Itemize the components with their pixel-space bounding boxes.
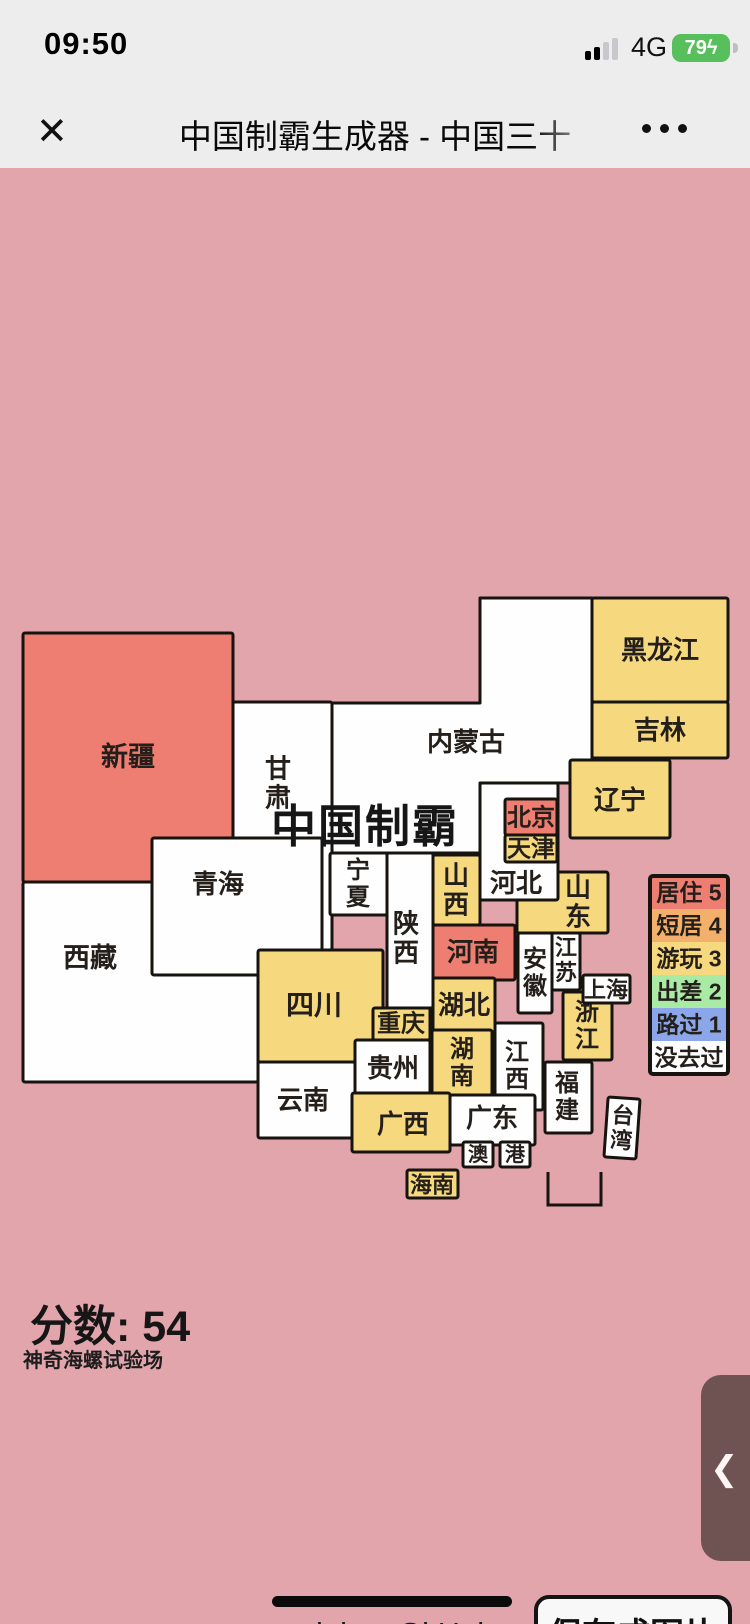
legend-label-lv3: 游玩 3 [656, 946, 721, 972]
province-label: 黑龙江 [621, 635, 699, 665]
phone-screen: 09:50 4G 79ϟ ✕ 中国制霸生成器 - 中国三十 新疆西藏甘肃青海内蒙… [0, 0, 750, 1624]
province-anhui[interactable]: 安徽 [518, 933, 552, 1013]
province-xianggang[interactable]: 港 [500, 1142, 530, 1167]
network-type-label: 4G [631, 32, 667, 63]
legend-label-lv4: 短居 4 [656, 913, 721, 939]
province-label: 广东 [466, 1103, 518, 1133]
legend-label-lv5: 居住 5 [656, 880, 721, 906]
province-label: 河南 [447, 937, 499, 967]
province-liaoning[interactable]: 辽宁 [570, 760, 670, 838]
province-guizhou[interactable]: 贵州 [355, 1040, 430, 1097]
map-subtitle: 神奇海螺试验场 [23, 1344, 163, 1373]
province-label: 贵州 [367, 1053, 419, 1083]
province-label: 山西 [443, 861, 469, 920]
save-image-button[interactable]: 保存成图片 [534, 1595, 732, 1624]
province-label: 内蒙古 [427, 727, 505, 757]
battery-icon: 79ϟ [672, 34, 730, 62]
province-shaanxi[interactable]: 陕西 [387, 853, 433, 1008]
province-heilongjiang[interactable]: 黑龙江 [592, 598, 728, 702]
province-label: 北京 [507, 804, 555, 832]
page-title: 中国制霸生成器 - 中国三十 [130, 110, 620, 158]
province-shanxi[interactable]: 山西 [433, 855, 480, 925]
province-label: 青海 [192, 869, 244, 899]
province-label: 广西 [377, 1109, 429, 1139]
status-time: 09:50 [44, 26, 128, 62]
province-taiwan[interactable]: 台湾 [604, 1097, 640, 1159]
province-label: 宁夏 [346, 856, 371, 911]
province-label: 上海 [584, 978, 628, 1003]
province-hunan[interactable]: 湖南 [432, 1030, 492, 1097]
province-label: 浙江 [575, 999, 599, 1053]
province-guangxi[interactable]: 广西 [352, 1093, 450, 1152]
legend-label-lv2: 出差 2 [656, 979, 721, 1005]
province-label: 四川 [286, 990, 342, 1021]
south-sea-box [548, 1172, 601, 1205]
province-label: 福建 [554, 1070, 579, 1124]
province-label: 山东 [565, 873, 591, 932]
province-label: 港 [505, 1142, 526, 1166]
close-icon[interactable]: ✕ [36, 108, 68, 156]
home-indicator[interactable] [272, 1596, 512, 1607]
legend: 居住 5短居 4游玩 3出差 2路过 1没去过 [650, 876, 728, 1074]
province-label: 湖南 [450, 1036, 474, 1090]
province-label: 江西 [505, 1039, 529, 1093]
lab-link[interactable]: lab [316, 1616, 357, 1624]
province-label: 重庆 [377, 1011, 425, 1038]
map-page: 新疆西藏甘肃青海内蒙古黑龙江吉林辽宁宁夏陕西山西山东河北北京天津河南江苏安徽四川… [0, 168, 750, 1624]
province-jiangsu[interactable]: 江苏 [552, 933, 580, 990]
signal-bars-icon [585, 36, 625, 60]
province-label: 吉林 [634, 715, 686, 745]
battery-cap-icon [733, 43, 738, 53]
github-link[interactable]: GitHub [398, 1616, 494, 1624]
province-label: 澳 [468, 1142, 489, 1166]
province-fujian[interactable]: 福建 [545, 1062, 592, 1133]
chevron-left-icon: ❮ [710, 1449, 739, 1489]
map-title: 中国制霸 [230, 790, 500, 855]
side-drawer-handle[interactable]: ❮ [701, 1375, 750, 1561]
province-label: 河北 [490, 868, 542, 898]
china-tile-map: 新疆西藏甘肃青海内蒙古黑龙江吉林辽宁宁夏陕西山西山东河北北京天津河南江苏安徽四川… [0, 168, 750, 1624]
province-label: 天津 [507, 836, 555, 863]
province-guangdong[interactable]: 广东 [450, 1095, 535, 1145]
province-label: 辽宁 [594, 785, 646, 815]
province-hubei[interactable]: 湖北 [433, 978, 495, 1032]
legend-label-lv1: 路过 1 [656, 1012, 721, 1038]
province-jilin[interactable]: 吉林 [592, 702, 728, 758]
province-label: 台湾 [609, 1102, 634, 1153]
province-hainan[interactable]: 海南 [407, 1170, 458, 1198]
browser-chrome: 09:50 4G 79ϟ ✕ 中国制霸生成器 - 中国三十 [0, 0, 750, 168]
province-label: 安徽 [522, 945, 548, 1000]
province-beijing[interactable]: 北京 [505, 799, 557, 835]
province-shanghai[interactable]: 上海 [583, 975, 630, 1003]
province-label: 云南 [277, 1085, 329, 1115]
legend-label-lv0: 没去过 [655, 1045, 724, 1071]
province-label: 湖北 [438, 990, 490, 1020]
province-label: 江苏 [555, 935, 577, 985]
province-label: 陕西 [393, 909, 419, 968]
nav-bar: ✕ 中国制霸生成器 - 中国三十 [0, 100, 750, 168]
province-label: 西藏 [63, 943, 117, 973]
more-menu-icon[interactable] [642, 124, 687, 133]
province-ningxia[interactable]: 宁夏 [330, 853, 387, 915]
province-henan[interactable]: 河南 [433, 925, 515, 980]
province-aomen[interactable]: 澳 [463, 1142, 493, 1167]
province-yunnan[interactable]: 云南 [258, 1062, 355, 1138]
province-label: 新疆 [101, 741, 155, 772]
province-chongqing[interactable]: 重庆 [373, 1008, 430, 1040]
province-tianjin[interactable]: 天津 [505, 835, 557, 863]
province-label: 海南 [410, 1173, 454, 1198]
